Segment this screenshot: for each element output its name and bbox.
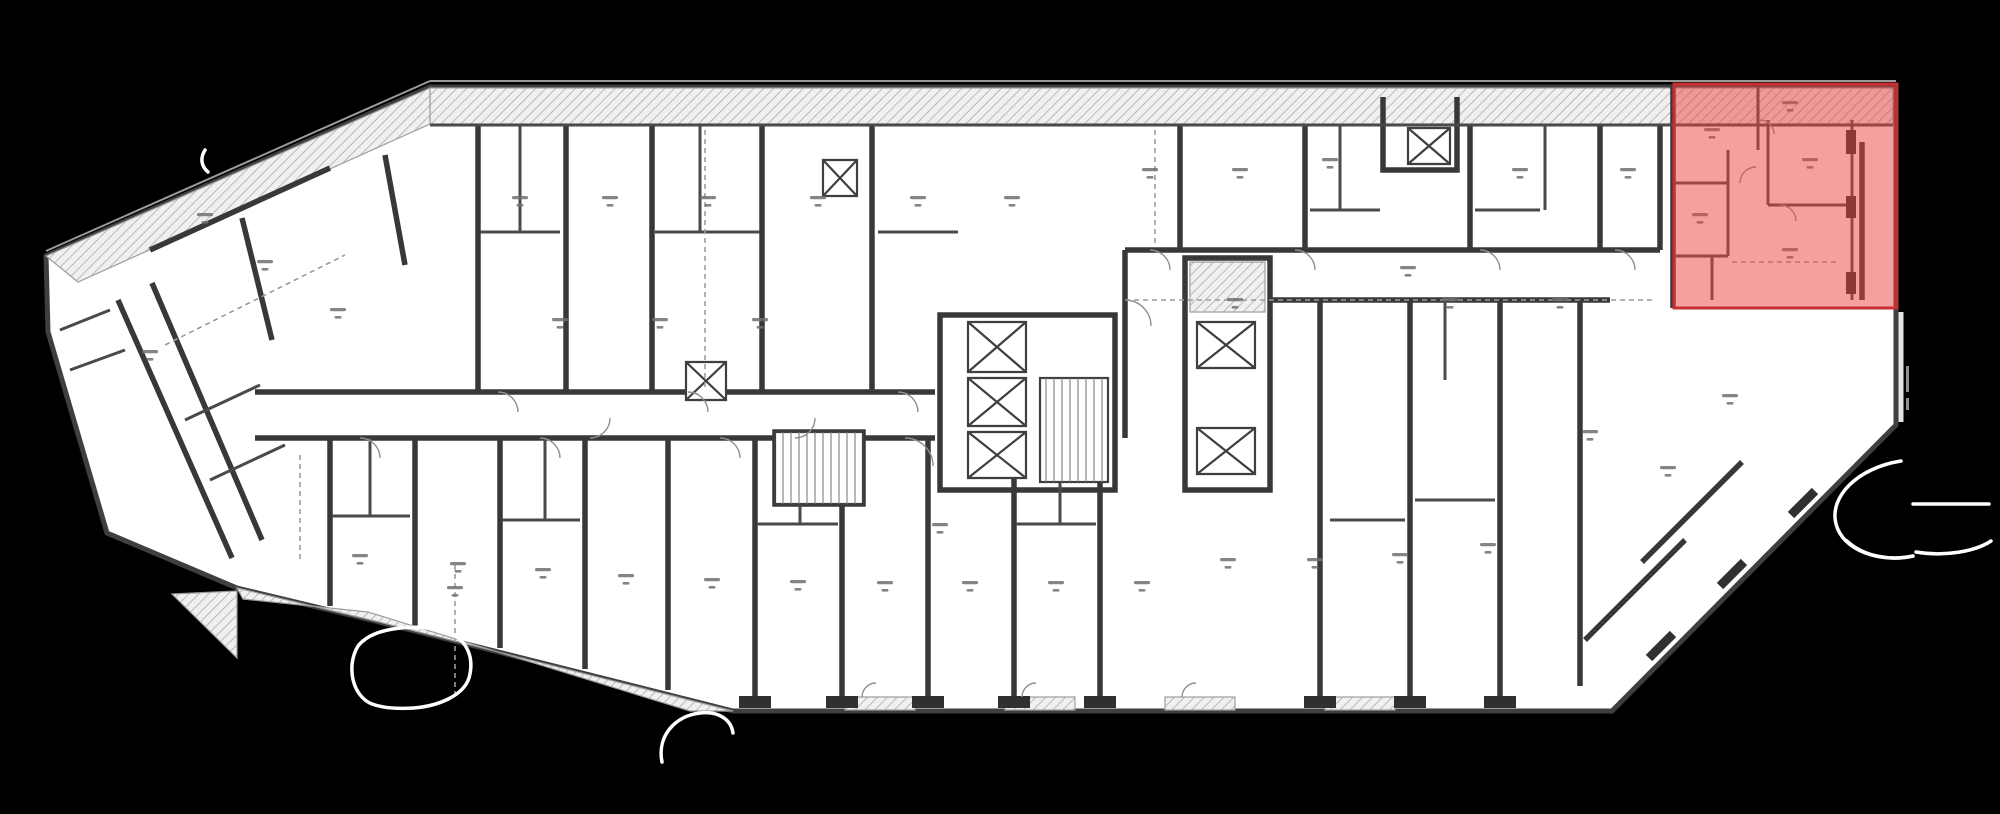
tip-balcony-triangle [172, 591, 237, 658]
right-edge-text-mark [1906, 398, 1909, 410]
stair-hatch-right-core [1190, 262, 1265, 312]
bottom-balcony-3 [1165, 697, 1235, 710]
highlighted-unit-overlay[interactable] [1674, 84, 1897, 308]
floor-plan-canvas [0, 0, 2000, 814]
floor-plan-viewport [0, 0, 2000, 814]
right-edge-text-mark [1906, 366, 1909, 392]
